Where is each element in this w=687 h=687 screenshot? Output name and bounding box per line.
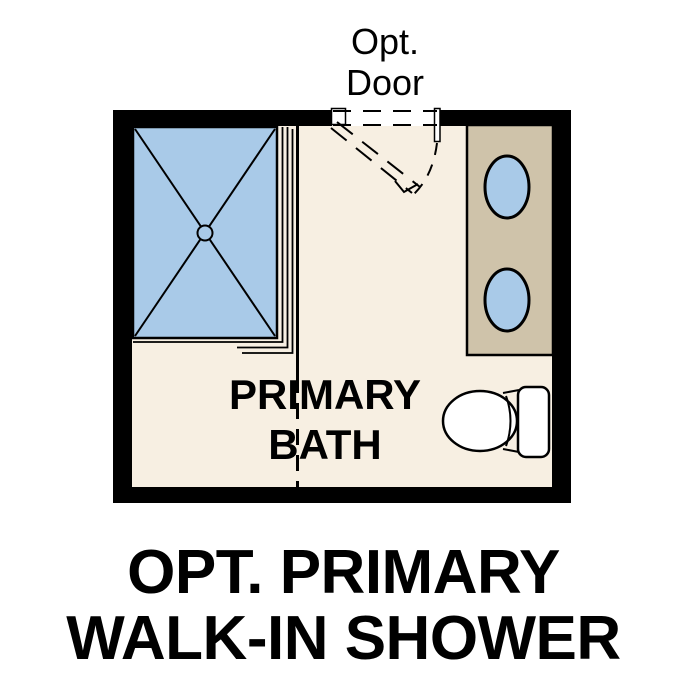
room-name-label: PRIMARY BATH [229,370,421,470]
room-name-line1: PRIMARY [229,370,421,420]
toilet-tank [518,387,549,457]
wall-left [113,110,132,503]
wall-top-left [113,110,332,126]
toilet-bowl [443,391,517,451]
wall-top-right [438,110,571,126]
room-name-line2: BATH [229,420,421,470]
floor-plan-figure: Opt. Door PRIMARY BATH OPT. PRIMARY WALK… [0,0,687,687]
plan-caption: OPT. PRIMARY WALK-IN SHOWER [0,540,687,672]
sink-bottom-icon [485,269,529,331]
opt-door-label-line1: Opt. [346,21,424,62]
sink-top-icon [485,156,529,218]
wall-bottom [113,487,571,503]
wall-right [552,110,571,503]
shower-drain-icon [198,226,213,241]
plan-caption-line1: OPT. PRIMARY [0,540,687,606]
opt-door-label: Opt. Door [346,21,424,103]
plan-caption-line2: WALK-IN SHOWER [0,606,687,672]
opt-door-label-line2: Door [346,62,424,103]
